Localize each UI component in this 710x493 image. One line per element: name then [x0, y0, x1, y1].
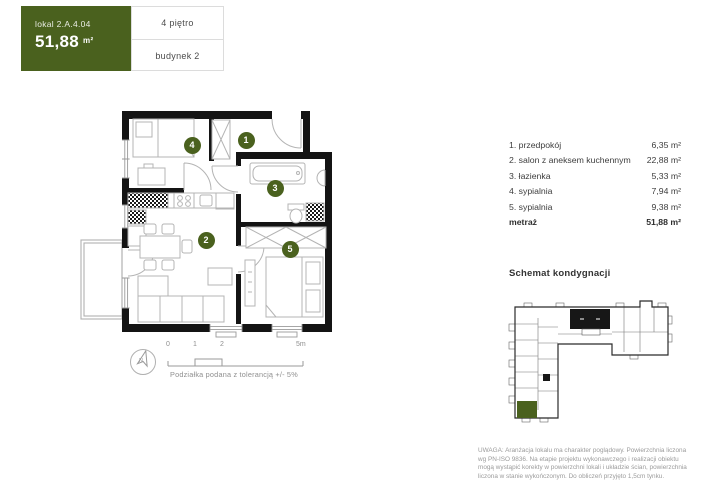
scale-tick-1: 1: [193, 341, 197, 348]
balcony: [81, 240, 122, 319]
total-row: metraż51,88 m²: [509, 217, 681, 227]
disclaimer-line: UWAGA: Aranżacja lokalu ma charakter pog…: [478, 447, 710, 456]
scale-tick-2: 2: [220, 341, 224, 348]
scale-note: Podziałka podana z tolerancją +/- 5%: [170, 370, 298, 379]
room-row: 4. sypialnia7,94 m²: [509, 186, 681, 196]
room-badge-2: 2: [198, 232, 215, 249]
bedroom5-furniture: [245, 227, 326, 317]
schematic-title: Schemat kondygnacji: [509, 268, 610, 279]
bedroom4-furniture: [133, 119, 194, 185]
room-name: 5. sypialnia: [509, 202, 552, 212]
room-name: 3. łazienka: [509, 171, 551, 181]
room-badge-1: 1: [238, 132, 255, 149]
disclaimer-line: wg PN-ISO 9836. Na etapie projektu wykon…: [478, 456, 710, 465]
room-name: 2. salon z aneksem kuchennym: [509, 155, 631, 165]
total-area: 51,88 m²: [646, 217, 681, 227]
room-name: 1. przedpokój: [509, 140, 561, 150]
room-badge-3: 3: [267, 180, 284, 197]
disclaimer-line: liczona w stanie wykończonym. Do oblicze…: [478, 473, 710, 482]
room-area: 7,94 m²: [652, 186, 681, 196]
room-area: 9,38 m²: [652, 202, 681, 212]
bathroom-fixtures: [250, 163, 325, 223]
room-area: 5,33 m²: [652, 171, 681, 181]
room-name: 4. sypialnia: [509, 186, 552, 196]
room-row: 1. przedpokój6,35 m²: [509, 140, 681, 150]
total-label: metraż: [509, 217, 537, 227]
scale-bar: [168, 359, 303, 366]
disclaimer-text: UWAGA: Aranżacja lokalu ma charakter pog…: [478, 447, 710, 481]
room-list: 1. przedpokój6,35 m² 2. salon z aneksem …: [509, 140, 681, 232]
room-badge-4: 4: [184, 137, 201, 154]
room-row: 2. salon z aneksem kuchennym22,88 m²: [509, 155, 681, 165]
sofa-area: [138, 268, 232, 322]
dining-set: [140, 224, 192, 270]
floor-plan-drawing: [0, 0, 710, 493]
compass-north-label: N: [139, 358, 143, 364]
room-row: 5. sypialnia9,38 m²: [509, 202, 681, 212]
room-area: 22,88 m²: [647, 155, 681, 165]
scale-tick-5m: 5m: [296, 341, 306, 348]
disclaimer-line: mogą wystąpić korekty w powierzchni loka…: [478, 464, 710, 473]
apartment-plan-page: lokal 2.A.4.04 51,88m² 4 piętro budynek …: [0, 0, 710, 493]
compass-icon: [131, 350, 156, 375]
floor-schematic: [509, 301, 672, 422]
hall-wardrobe: [212, 120, 230, 159]
room-area: 6,35 m²: [652, 140, 681, 150]
room-badge-5: 5: [282, 241, 299, 258]
scale-tick-0: 0: [166, 341, 170, 348]
current-unit-marker: [517, 401, 537, 418]
room-row: 3. łazienka5,33 m²: [509, 171, 681, 181]
